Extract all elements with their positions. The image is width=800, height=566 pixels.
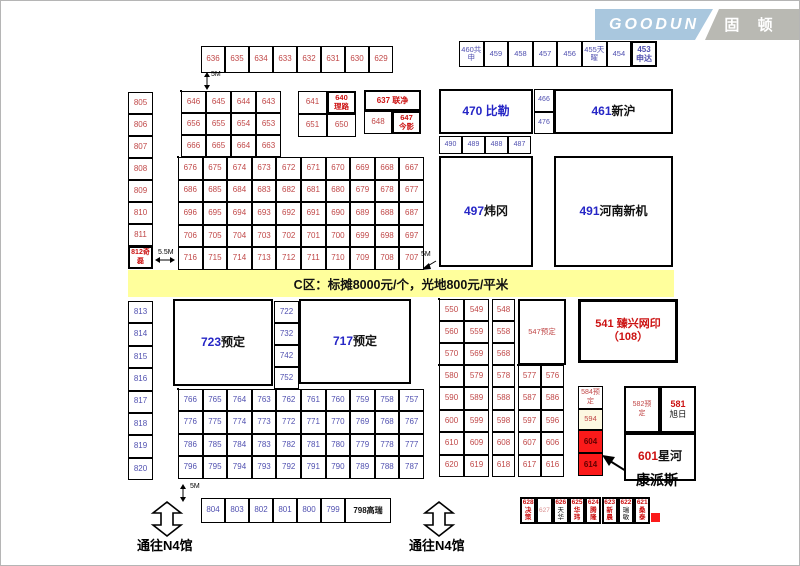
booth-625: 625华玮 [569,497,585,524]
booth-466: 466 [534,89,554,112]
booth-633: 633 [273,46,297,73]
label: 新晨 [604,507,616,522]
label: 453 [637,45,650,54]
label: 812奇 [131,249,150,257]
booth-676: 676 [178,157,203,180]
booth-768: 768 [375,411,400,433]
booth-677: 677 [399,180,424,203]
booth-777: 777 [399,434,424,456]
booth-701: 701 [301,225,326,248]
booth-667: 667 [399,157,424,180]
booth-629: 629 [369,46,393,73]
booth-600: 600 [439,410,464,432]
label: 541 臻兴网印 [595,318,660,331]
label: 601 [638,450,658,464]
label: 预定 [221,336,245,350]
booth-752: 752 [274,367,299,389]
booth-787: 787 [399,456,424,478]
booth-588: 588 [492,387,515,409]
logo-cn-segment: 固 顿 [705,9,799,40]
booth-590: 590 [439,387,464,409]
booth-549: 549 [464,299,489,321]
booth-669: 669 [350,157,375,180]
booth-716: 716 [178,247,203,270]
booth-790: 790 [326,456,351,478]
booth-626: 626天华 [553,497,569,524]
booth-617: 617 [518,455,541,477]
booth-604: 604 [578,430,603,453]
label: 定 [587,398,594,406]
booth-686: 686 [178,180,203,203]
label: 628 [523,499,534,506]
dim-5-5m: 5.5M [158,249,174,256]
booth-732: 732 [274,323,299,345]
label: 今影 [399,123,414,132]
booth-800: 800 [297,498,321,523]
booth-712: 712 [276,247,301,270]
booth-594: 594 [578,409,603,430]
booth-715: 715 [203,247,228,270]
label: 新沪 [612,105,636,119]
booth-693: 693 [252,202,277,225]
logo-cn-text: 固 顿 [724,14,779,35]
label: 582预 [633,401,652,409]
booth-783: 783 [252,434,277,456]
booth-558: 558 [492,321,515,343]
booth-714: 714 [227,247,252,270]
booth-455: 455天 曜 [582,41,607,67]
booth-541: 541 臻兴网印（108） [578,299,678,363]
booth-671: 671 [301,157,326,180]
booth-456: 456 [557,41,582,67]
booth-550: 550 [439,299,464,321]
booth-810: 810 [128,202,153,224]
booth-704: 704 [227,225,252,248]
booth-696: 696 [178,202,203,225]
booth-587: 587 [518,387,541,409]
booth-681: 681 [301,180,326,203]
logo-en-segment: GOODUN [595,9,713,40]
booth-799: 799 [321,498,345,523]
booth-560: 560 [439,321,464,343]
booth-698: 698 [375,225,400,248]
booth-655: 655 [206,113,231,135]
booth-489: 489 [462,136,485,154]
label: 624 [588,499,599,506]
booth-650: 650 [327,114,356,137]
gate-right-label: 通往N4馆 [409,539,465,552]
booth-700: 700 [326,225,351,248]
booth-634: 634 [249,46,273,73]
booth-761: 761 [301,389,326,411]
booth-610: 610 [439,432,464,454]
booth-757: 757 [399,389,424,411]
booth-624: 624腾隆 [585,497,601,524]
booth-782: 782 [276,434,301,456]
booth-722: 722 [274,301,299,323]
booth-773: 773 [252,411,277,433]
booth-647: 647今影 [392,111,421,134]
label: 河南新机 [600,205,648,219]
booth-578: 578 [492,365,515,387]
booth-766: 766 [178,389,203,411]
booth-622: 622瑞敏 [618,497,634,524]
booth-653: 653 [256,113,281,135]
booth-648: 648 [364,111,392,134]
booth-683: 683 [252,180,277,203]
booth-670: 670 [326,157,351,180]
booth-820: 820 [128,458,153,480]
booth-803: 803 [225,498,249,523]
label: 470 比勒 [462,105,509,119]
red-marker [651,513,660,522]
booth-665: 665 [206,135,231,157]
label: 723 [201,336,221,350]
booth-811: 811 [128,224,153,246]
label: 炜冈 [484,205,508,219]
booth-742: 742 [274,345,299,367]
label: 磊 [137,258,144,266]
booth-685: 685 [203,180,228,203]
booth-580: 580 [439,365,464,387]
booth-771: 771 [301,411,326,433]
booth-765: 765 [203,389,228,411]
label: 491 [579,205,599,219]
label: 584预 [581,389,600,397]
booth-805: 805 [128,92,153,114]
gate-right-arrow-icon [422,501,456,537]
booth-606: 606 [541,432,564,454]
booth-609: 609 [464,432,489,454]
booth-819: 819 [128,435,153,457]
booth-674: 674 [227,157,252,180]
label: 华玮 [571,507,583,522]
booth-487: 487 [508,136,531,154]
label: 461 [591,105,611,119]
booth-453: 453申达 [631,41,657,67]
booth-770: 770 [326,411,351,433]
label: 627 [539,507,550,514]
booth-459: 459 [484,41,509,67]
booth-789: 789 [350,456,375,478]
booth-651: 651 [298,114,327,137]
booth-644: 644 [231,91,256,113]
booth-679: 679 [350,180,375,203]
booth-680: 680 [326,180,351,203]
label: 桑泰 [636,507,648,522]
booth-705: 705 [203,225,228,248]
booth-767: 767 [399,411,424,433]
booth-794: 794 [227,456,252,478]
booth-689: 689 [350,202,375,225]
booth-637: 637 联净 [364,90,421,111]
booth-643: 643 [256,91,281,113]
booth-632: 632 [297,46,321,73]
label: 623 [604,499,615,506]
label: 622 [621,499,632,506]
booth-645: 645 [206,91,231,113]
label: 预定 [353,335,377,349]
booth-476: 476 [534,112,554,135]
booth-599: 599 [464,410,489,432]
booth-792: 792 [276,456,301,478]
booth-779: 779 [350,434,375,456]
booth-619: 619 [464,455,489,477]
booth-710: 710 [326,247,351,270]
booth-772: 772 [276,411,301,433]
booth-818: 818 [128,413,153,435]
logo-en-text: GOODUN [609,16,699,34]
booth-470: 470 比勒 [439,89,533,134]
booth-454: 454 [607,41,632,67]
booth-795: 795 [203,456,228,478]
label: 798高瑞 [353,506,382,515]
booth-785: 785 [203,434,228,456]
booth-582: 582预定 [624,386,660,433]
dim-arrow-bottom-icon [178,484,188,502]
booth-570: 570 [439,343,464,365]
booth-798: 798高瑞 [345,498,391,523]
booth-630: 630 [345,46,369,73]
booth-621: 621桑泰 [634,497,650,524]
booth-586: 586 [541,387,564,409]
booth-796: 796 [178,456,203,478]
booth-548: 548 [492,299,515,321]
booth-723: 723 预定 [173,299,273,386]
booth-668: 668 [375,157,400,180]
booth-641: 641 [298,91,327,114]
label: 腾隆 [587,507,599,522]
label: 理路 [334,103,349,112]
booth-666: 666 [181,135,206,157]
booth-579: 579 [464,365,489,387]
booth-614: 614 [578,453,603,476]
booth-801: 801 [273,498,297,523]
booth-711: 711 [301,247,326,270]
floorplan-page: GOODUN 固 顿 C区：标摊8000元/个，光地800元/平米 [0,0,800,566]
booth-491: 491 河南新机 [554,156,673,267]
booth-702: 702 [276,225,301,248]
booth-802: 802 [249,498,273,523]
label: 594 [584,415,597,424]
booth-616: 616 [541,455,564,477]
booth-460: 460共 申 [459,41,484,67]
dim-5m-mid: 5M [421,251,431,258]
booth-699: 699 [350,225,375,248]
booth-713: 713 [252,247,277,270]
booth-map: GOODUN 固 顿 C区：标摊8000元/个，光地800元/平米 [1,1,800,566]
booth-497: 497 炜冈 [439,156,533,267]
booth-576: 576 [541,365,564,387]
label: 天华 [555,507,567,522]
booth-804: 804 [201,498,225,523]
booth-781: 781 [301,434,326,456]
label: 604 [584,437,597,446]
booth-646: 646 [181,91,206,113]
booth-780: 780 [326,434,351,456]
booth-684: 684 [227,180,252,203]
booth-806: 806 [128,114,153,136]
label: 637 联净 [377,96,409,105]
booth-812: 812奇磊 [128,246,153,269]
booth-817: 817 [128,391,153,413]
booth-706: 706 [178,225,203,248]
booth-607: 607 [518,432,541,454]
booth-778: 778 [375,434,400,456]
booth-791: 791 [301,456,326,478]
booth-793: 793 [252,456,277,478]
booth-709: 709 [350,247,375,270]
booth-663: 663 [256,135,281,157]
booth-584: 584预定 [578,386,603,409]
booth-672: 672 [276,157,301,180]
label: 申达 [636,54,652,63]
booth-762: 762 [276,389,301,411]
booth-636: 636 [201,46,225,73]
label: 决策 [522,507,534,522]
booth-691: 691 [301,202,326,225]
gate-left-arrow-icon [150,501,184,537]
booth-618: 618 [492,455,515,477]
kangpaisi-label: 康派斯 [636,473,678,487]
booth-628: 628决策 [520,497,536,524]
label: 星河 [658,450,682,464]
zone-price-banner: C区：标摊8000元/个，光地800元/平米 [128,270,674,297]
booth-635: 635 [225,46,249,73]
label: 瑞敏 [620,507,632,522]
booth-627: 627 [536,497,552,524]
booth-759: 759 [350,389,375,411]
booth-717: 717 预定 [299,299,411,384]
booth-631: 631 [321,46,345,73]
booth-675: 675 [203,157,228,180]
booth-758: 758 [375,389,400,411]
booth-654: 654 [231,113,256,135]
booth-623: 623新晨 [602,497,618,524]
booth-688: 688 [375,202,400,225]
booth-620: 620 [439,455,464,477]
label: 旭日 [669,410,686,420]
booth-774: 774 [227,411,252,433]
booth-640: 640理路 [327,91,356,114]
gate-left-label: 通往N4馆 [137,539,193,552]
booth-577: 577 [518,365,541,387]
booth-813: 813 [128,301,153,323]
label: 614 [584,460,597,469]
booth-457: 457 [533,41,558,67]
booth-809: 809 [128,180,153,202]
booth-690: 690 [326,202,351,225]
booth-490: 490 [439,136,462,154]
booth-760: 760 [326,389,351,411]
booth-694: 694 [227,202,252,225]
booth-816: 816 [128,368,153,390]
booth-769: 769 [350,411,375,433]
booth-775: 775 [203,411,228,433]
booth-673: 673 [252,157,277,180]
booth-815: 815 [128,346,153,368]
booth-656: 656 [181,113,206,135]
booth-786: 786 [178,434,203,456]
booth-763: 763 [252,389,277,411]
booth-695: 695 [203,202,228,225]
booth-788: 788 [375,456,400,478]
booth-697: 697 [399,225,424,248]
booth-682: 682 [276,180,301,203]
label: 定 [639,410,646,418]
booth-597: 597 [518,410,541,432]
booth-692: 692 [276,202,301,225]
booth-461: 461 新沪 [554,89,673,134]
label: 497 [464,205,484,219]
booth-687: 687 [399,202,424,225]
booth-596: 596 [541,410,564,432]
booth-764: 764 [227,389,252,411]
booth-708: 708 [375,247,400,270]
booth-559: 559 [464,321,489,343]
label: 717 [333,335,353,349]
booth-488: 488 [485,136,508,154]
booth-814: 814 [128,323,153,345]
booth-678: 678 [375,180,400,203]
label: 547预定 [528,328,556,337]
dim-arrow-55-icon [155,256,175,264]
booth-547: 547预定 [518,299,566,365]
booth-784: 784 [227,434,252,456]
label: （108） [608,331,648,344]
booth-568: 568 [492,343,515,365]
booth-458: 458 [508,41,533,67]
label: 621 [637,499,648,506]
booth-807: 807 [128,136,153,158]
booth-808: 808 [128,158,153,180]
label: 626 [555,499,566,506]
booth-776: 776 [178,411,203,433]
booth-608: 608 [492,432,515,454]
booth-598: 598 [492,410,515,432]
booth-703: 703 [252,225,277,248]
dim-5m-bottom: 5M [190,483,200,490]
booth-569: 569 [464,343,489,365]
booth-581: 581旭日 [660,386,696,433]
booth-664: 664 [231,135,256,157]
label: 625 [572,499,583,506]
booth-589: 589 [464,387,489,409]
dim-5m-top: 5M [211,71,221,78]
goodun-logo: GOODUN 固 顿 [595,9,799,40]
